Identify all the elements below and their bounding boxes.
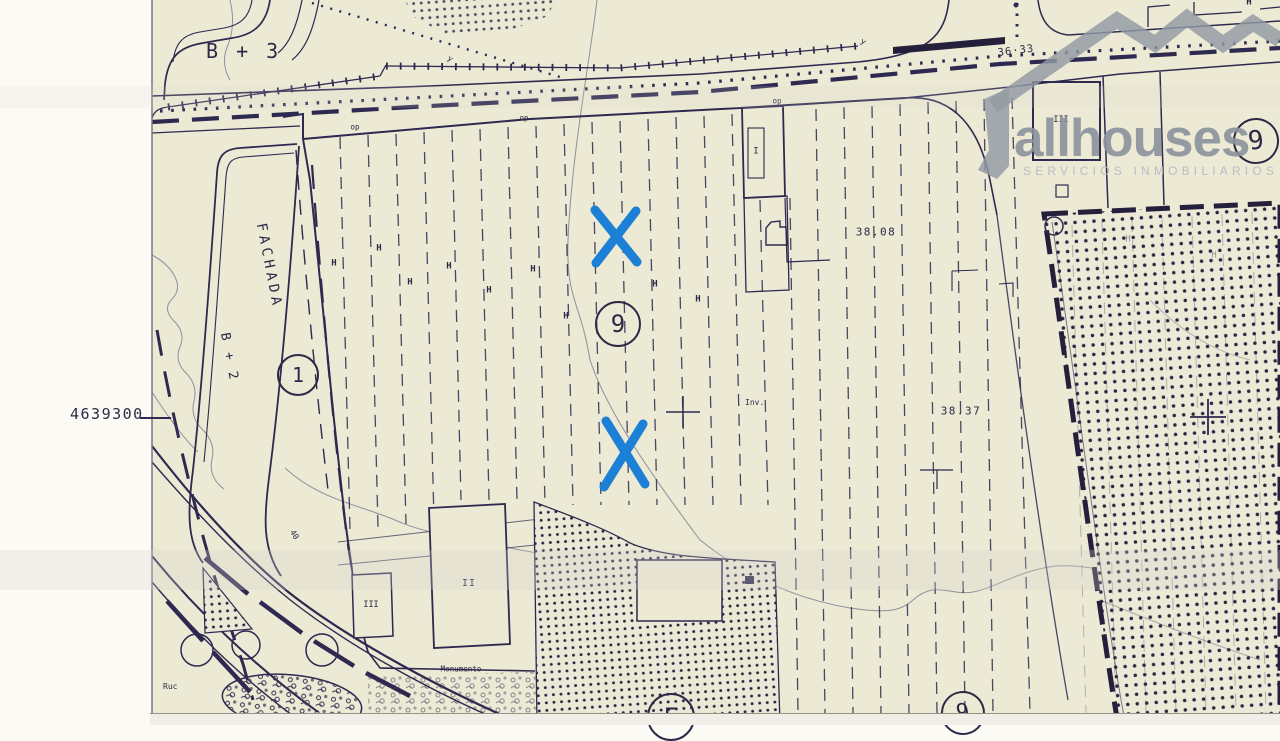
map-linework bbox=[0, 0, 1280, 724]
cadastral-map-screenshot: 4639300 B + 3 FACHADA B + 2 40 1 9 9 9 E… bbox=[0, 0, 1280, 724]
sheet-bottom-edge bbox=[150, 713, 1280, 725]
building-notch bbox=[637, 560, 722, 621]
small-structure bbox=[745, 576, 754, 584]
